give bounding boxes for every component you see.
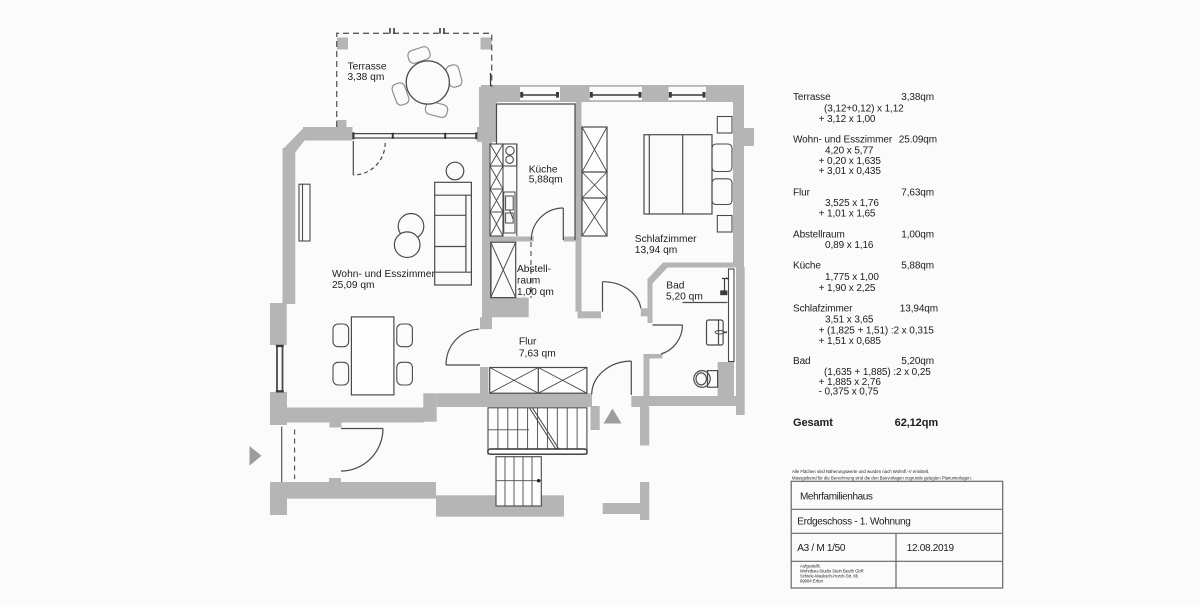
svg-text:- 0,375 x 0,75: - 0,375 x 0,75	[819, 387, 879, 398]
svg-text:12.08.2019: 12.08.2019	[907, 543, 955, 554]
svg-text:7,63qm: 7,63qm	[901, 187, 934, 198]
svg-text:5,88qm: 5,88qm	[901, 260, 934, 271]
svg-text:(3,12+0,12) x 1,12: (3,12+0,12) x 1,12	[824, 103, 904, 114]
svg-text:+ 1,01 x 1,65: + 1,01 x 1,65	[819, 208, 876, 219]
svg-text:13,94qm: 13,94qm	[900, 304, 938, 315]
svg-text:raum: raum	[517, 276, 540, 287]
svg-text:Terrasse: Terrasse	[793, 92, 831, 103]
svg-text:1,775 x 1,00: 1,775 x 1,00	[825, 272, 879, 283]
svg-text:Schlafzimmer: Schlafzimmer	[793, 304, 853, 315]
svg-text:0,89 x 1,16: 0,89 x 1,16	[825, 240, 874, 251]
svg-text:3,525 x 1,76: 3,525 x 1,76	[825, 198, 879, 209]
svg-text:Schlafzimmer: Schlafzimmer	[635, 234, 697, 245]
svg-text:Bad: Bad	[666, 280, 684, 291]
svg-text:Bad: Bad	[793, 356, 811, 367]
svg-text:Wohn- und Esszimmer: Wohn- und Esszimmer	[332, 269, 435, 280]
svg-text:7,63 qm: 7,63 qm	[519, 349, 556, 360]
svg-text:25.09qm: 25.09qm	[899, 134, 937, 145]
svg-text:A3 / M 1/50: A3 / M 1/50	[797, 543, 846, 554]
svg-text:Terrasse: Terrasse	[348, 62, 387, 73]
svg-text:+ 1,90 x 2,25: + 1,90 x 2,25	[819, 283, 876, 294]
svg-text:Alle Flächen sind Näherungswer: Alle Flächen sind Näherungswerte und wur…	[792, 469, 929, 474]
svg-text:+ 3,12 x 1,00: + 3,12 x 1,00	[819, 114, 876, 125]
svg-text:99084 Erfurt: 99084 Erfurt	[800, 579, 824, 584]
svg-text:3,38 qm: 3,38 qm	[348, 72, 385, 83]
svg-text:Mehrfamilienhaus: Mehrfamilienhaus	[800, 492, 873, 503]
svg-text:Gesamt: Gesamt	[793, 417, 833, 429]
svg-text:Abstell-: Abstell-	[517, 264, 551, 275]
svg-text:4,20 x 5,77: 4,20 x 5,77	[825, 145, 874, 156]
svg-text:Wohn- und Esszimmer: Wohn- und Esszimmer	[793, 134, 893, 145]
svg-text:5,88qm: 5,88qm	[529, 175, 563, 186]
svg-text:3,38qm: 3,38qm	[901, 92, 934, 103]
svg-text:3,51 x 3,65: 3,51 x 3,65	[825, 315, 874, 326]
svg-text:62,12qm: 62,12qm	[895, 417, 939, 429]
svg-text:1,00qm: 1,00qm	[901, 229, 934, 240]
svg-text:25,09 qm: 25,09 qm	[332, 280, 374, 291]
svg-text:Erdgeschoss - 1. Wohnung: Erdgeschoss - 1. Wohnung	[797, 517, 910, 528]
svg-text:Flur: Flur	[793, 187, 811, 198]
svg-text:Flur: Flur	[519, 337, 537, 348]
svg-text:Abstellraum: Abstellraum	[793, 229, 845, 240]
svg-text:5,20qm: 5,20qm	[901, 356, 934, 367]
svg-text:+ 1,51 x 0,685: + 1,51 x 0,685	[819, 336, 882, 347]
svg-text:1,00 qm: 1,00 qm	[517, 287, 554, 298]
svg-text:+ (1,825 + 1,51) :2 x 0,315: + (1,825 + 1,51) :2 x 0,315	[819, 325, 935, 336]
svg-text:+ 3,01 x 0,435: + 3,01 x 0,435	[819, 166, 882, 177]
svg-text:5,20 qm: 5,20 qm	[666, 292, 703, 303]
svg-text:Massgebend für die Berechnung: Massgebend für die Berechnung sind die d…	[792, 475, 972, 480]
svg-text:Küche: Küche	[793, 260, 821, 271]
svg-text:13,94 qm: 13,94 qm	[635, 245, 677, 256]
